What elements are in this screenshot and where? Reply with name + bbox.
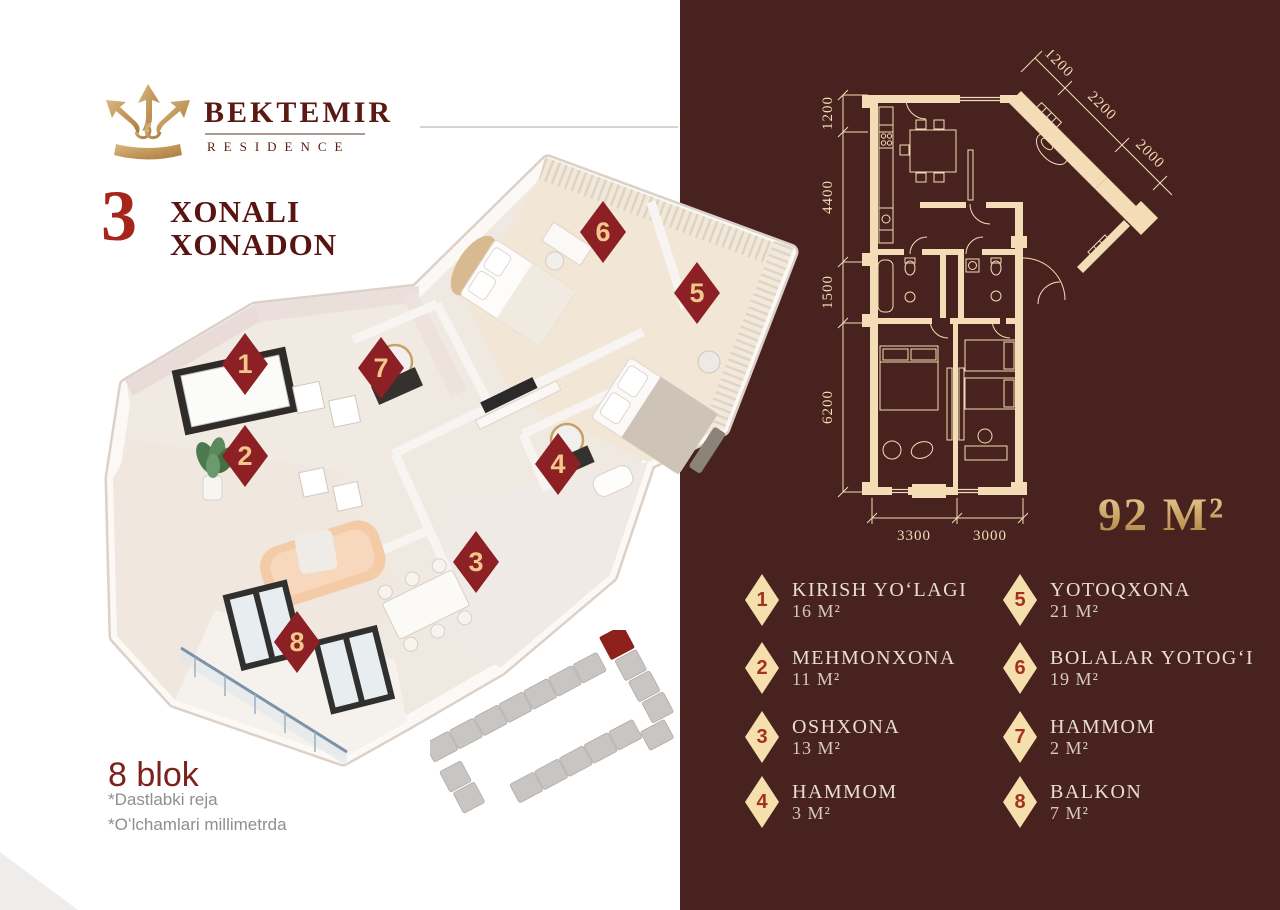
svg-text:3300: 3300 bbox=[897, 528, 931, 544]
legend-label: BOLALAR YOTOGʻI bbox=[1050, 647, 1254, 669]
brand-name: BEKTEMIR bbox=[204, 96, 393, 130]
svg-text:8: 8 bbox=[289, 627, 304, 657]
svg-text:7: 7 bbox=[373, 353, 388, 383]
svg-text:1200: 1200 bbox=[1041, 50, 1076, 81]
legend-diamond-6: 6 bbox=[1003, 642, 1037, 694]
svg-text:4: 4 bbox=[550, 449, 565, 479]
legend-area: 3 M² bbox=[792, 803, 898, 824]
plan-dimensions bbox=[838, 51, 1172, 524]
legend-item-7: 7 HAMMOM 2 M² bbox=[1003, 711, 1156, 763]
legend-label: KIRISH YOʻLAGI bbox=[792, 579, 967, 601]
legend-label: HAMMOM bbox=[792, 781, 898, 803]
legend-label: MEHMONXONA bbox=[792, 647, 956, 669]
legend-label: OSHXONA bbox=[792, 716, 900, 738]
chair-master bbox=[698, 351, 720, 373]
page-fold-shadow bbox=[0, 852, 78, 910]
legend-item-6: 6 BOLALAR YOTOGʻI 19 M² bbox=[1003, 642, 1254, 694]
legend-label: HAMMOM bbox=[1050, 716, 1156, 738]
svg-text:6: 6 bbox=[595, 217, 610, 247]
svg-text:2200: 2200 bbox=[1084, 88, 1119, 123]
legend-item-5: 5 YOTOQXONA 21 M² bbox=[1003, 574, 1191, 626]
svg-text:2: 2 bbox=[237, 441, 252, 471]
legend-area: 7 M² bbox=[1050, 803, 1142, 824]
floorplan-2d-drawing: 1200 4400 1500 6200 3300 3000 1200 2200 … bbox=[810, 50, 1280, 560]
svg-text:3: 3 bbox=[468, 547, 483, 577]
legend-diamond-8: 8 bbox=[1003, 776, 1037, 828]
brand-rule bbox=[205, 133, 365, 135]
svg-text:6200: 6200 bbox=[820, 390, 836, 424]
floorplan-3d-render: 1 2 3 4 5 6 7 8 bbox=[95, 140, 805, 820]
legend-area: 21 M² bbox=[1050, 601, 1191, 622]
legend-area: 19 M² bbox=[1050, 669, 1254, 690]
svg-text:1500: 1500 bbox=[820, 275, 836, 309]
svg-text:2000: 2000 bbox=[1132, 136, 1167, 171]
legend-label: YOTOQXONA bbox=[1050, 579, 1191, 601]
legend-area: 16 M² bbox=[792, 601, 967, 622]
svg-text:5: 5 bbox=[689, 278, 704, 308]
svg-text:4400: 4400 bbox=[820, 180, 836, 214]
legend-area: 11 M² bbox=[792, 669, 956, 690]
legend-item-8: 8 BALKON 7 M² bbox=[1003, 776, 1142, 828]
svg-text:1200: 1200 bbox=[820, 96, 836, 130]
svg-text:1: 1 bbox=[237, 349, 252, 379]
total-area: 92 M² bbox=[1098, 488, 1225, 542]
legend-area: 2 M² bbox=[1050, 738, 1156, 759]
header-divider bbox=[420, 126, 678, 128]
legend-diamond-7: 7 bbox=[1003, 711, 1037, 763]
legend-area: 13 M² bbox=[792, 738, 900, 759]
svg-text:3000: 3000 bbox=[973, 528, 1007, 544]
legend-label: BALKON bbox=[1050, 781, 1142, 803]
plan-walls bbox=[862, 91, 1158, 498]
legend-diamond-5: 5 bbox=[1003, 574, 1037, 626]
